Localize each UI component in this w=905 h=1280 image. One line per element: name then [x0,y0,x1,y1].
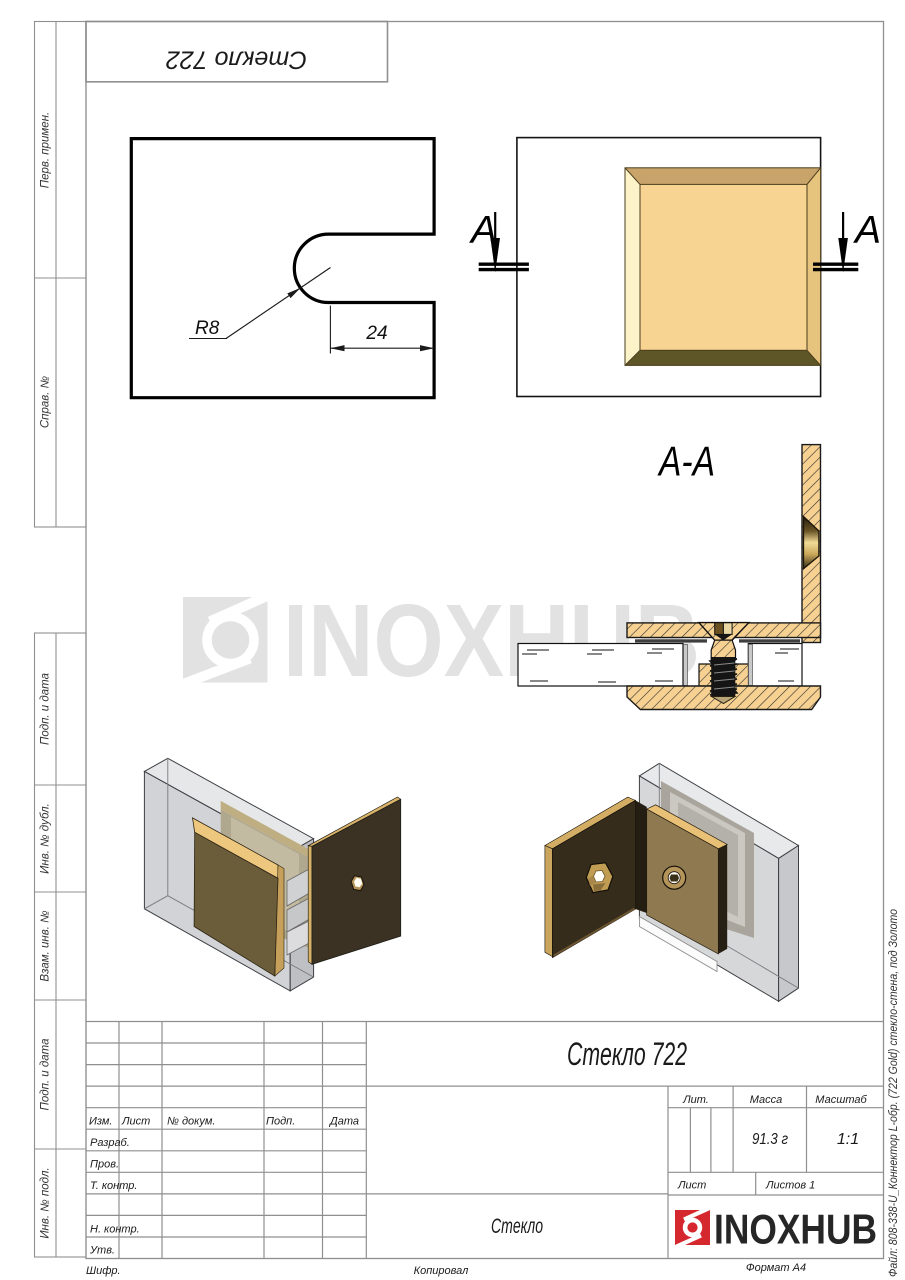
svg-text:Разраб.: Разраб. [90,1137,130,1149]
svg-text:Формат А4: Формат А4 [746,1262,806,1274]
svg-text:Подп. и дата: Подп. и дата [40,1039,52,1111]
svg-text:R8: R8 [195,318,220,339]
svg-text:A: A [853,209,881,252]
svg-text:A-A: A-A [657,438,715,485]
svg-text:1:1: 1:1 [837,1131,859,1148]
svg-text:Инв. № подл.: Инв. № подл. [40,1167,52,1238]
svg-text:Перв. примен.: Перв. примен. [40,112,52,188]
svg-text:Стекло: Стекло [491,1215,543,1238]
svg-text:Подп. и дата: Подп. и дата [40,673,52,745]
svg-text:№ докум.: № докум. [167,1116,215,1128]
svg-text:Масштаб: Масштаб [815,1094,867,1106]
svg-text:Лист: Лист [677,1180,706,1192]
svg-text:Изм.: Изм. [89,1116,112,1128]
svg-text:Подп.: Подп. [266,1116,295,1128]
svg-text:Масса: Масса [750,1094,783,1106]
svg-text:Листов 1: Листов 1 [765,1180,815,1192]
svg-text:A: A [469,209,497,252]
svg-text:Н. контр.: Н. контр. [90,1224,140,1236]
svg-text:Справ. №: Справ. № [40,375,52,428]
svg-text:Файл: 808-338-U_Коннектор L-об: Файл: 808-338-U_Коннектор L-обр. (722 Go… [888,908,900,1277]
svg-text:Шифр.: Шифр. [86,1265,121,1277]
svg-text:Взам. инв. №: Взам. инв. № [40,910,52,982]
svg-text:Инв. № дубл.: Инв. № дубл. [40,803,52,874]
svg-text:Лит.: Лит. [682,1094,709,1106]
svg-text:Дата: Дата [328,1116,359,1128]
svg-text:24: 24 [365,323,387,344]
svg-text:Стекло 722: Стекло 722 [166,46,307,74]
svg-text:Т. контр.: Т. контр. [90,1180,137,1192]
svg-text:91.3 г: 91.3 г [752,1131,788,1148]
svg-text:Пров.: Пров. [90,1159,119,1171]
svg-text:Утв.: Утв. [89,1245,115,1257]
svg-text:Лист: Лист [121,1116,150,1128]
svg-text:INOXHUB: INOXHUB [714,1206,877,1253]
svg-text:Стекло 722: Стекло 722 [567,1036,687,1072]
svg-text:Копировал: Копировал [414,1265,469,1277]
